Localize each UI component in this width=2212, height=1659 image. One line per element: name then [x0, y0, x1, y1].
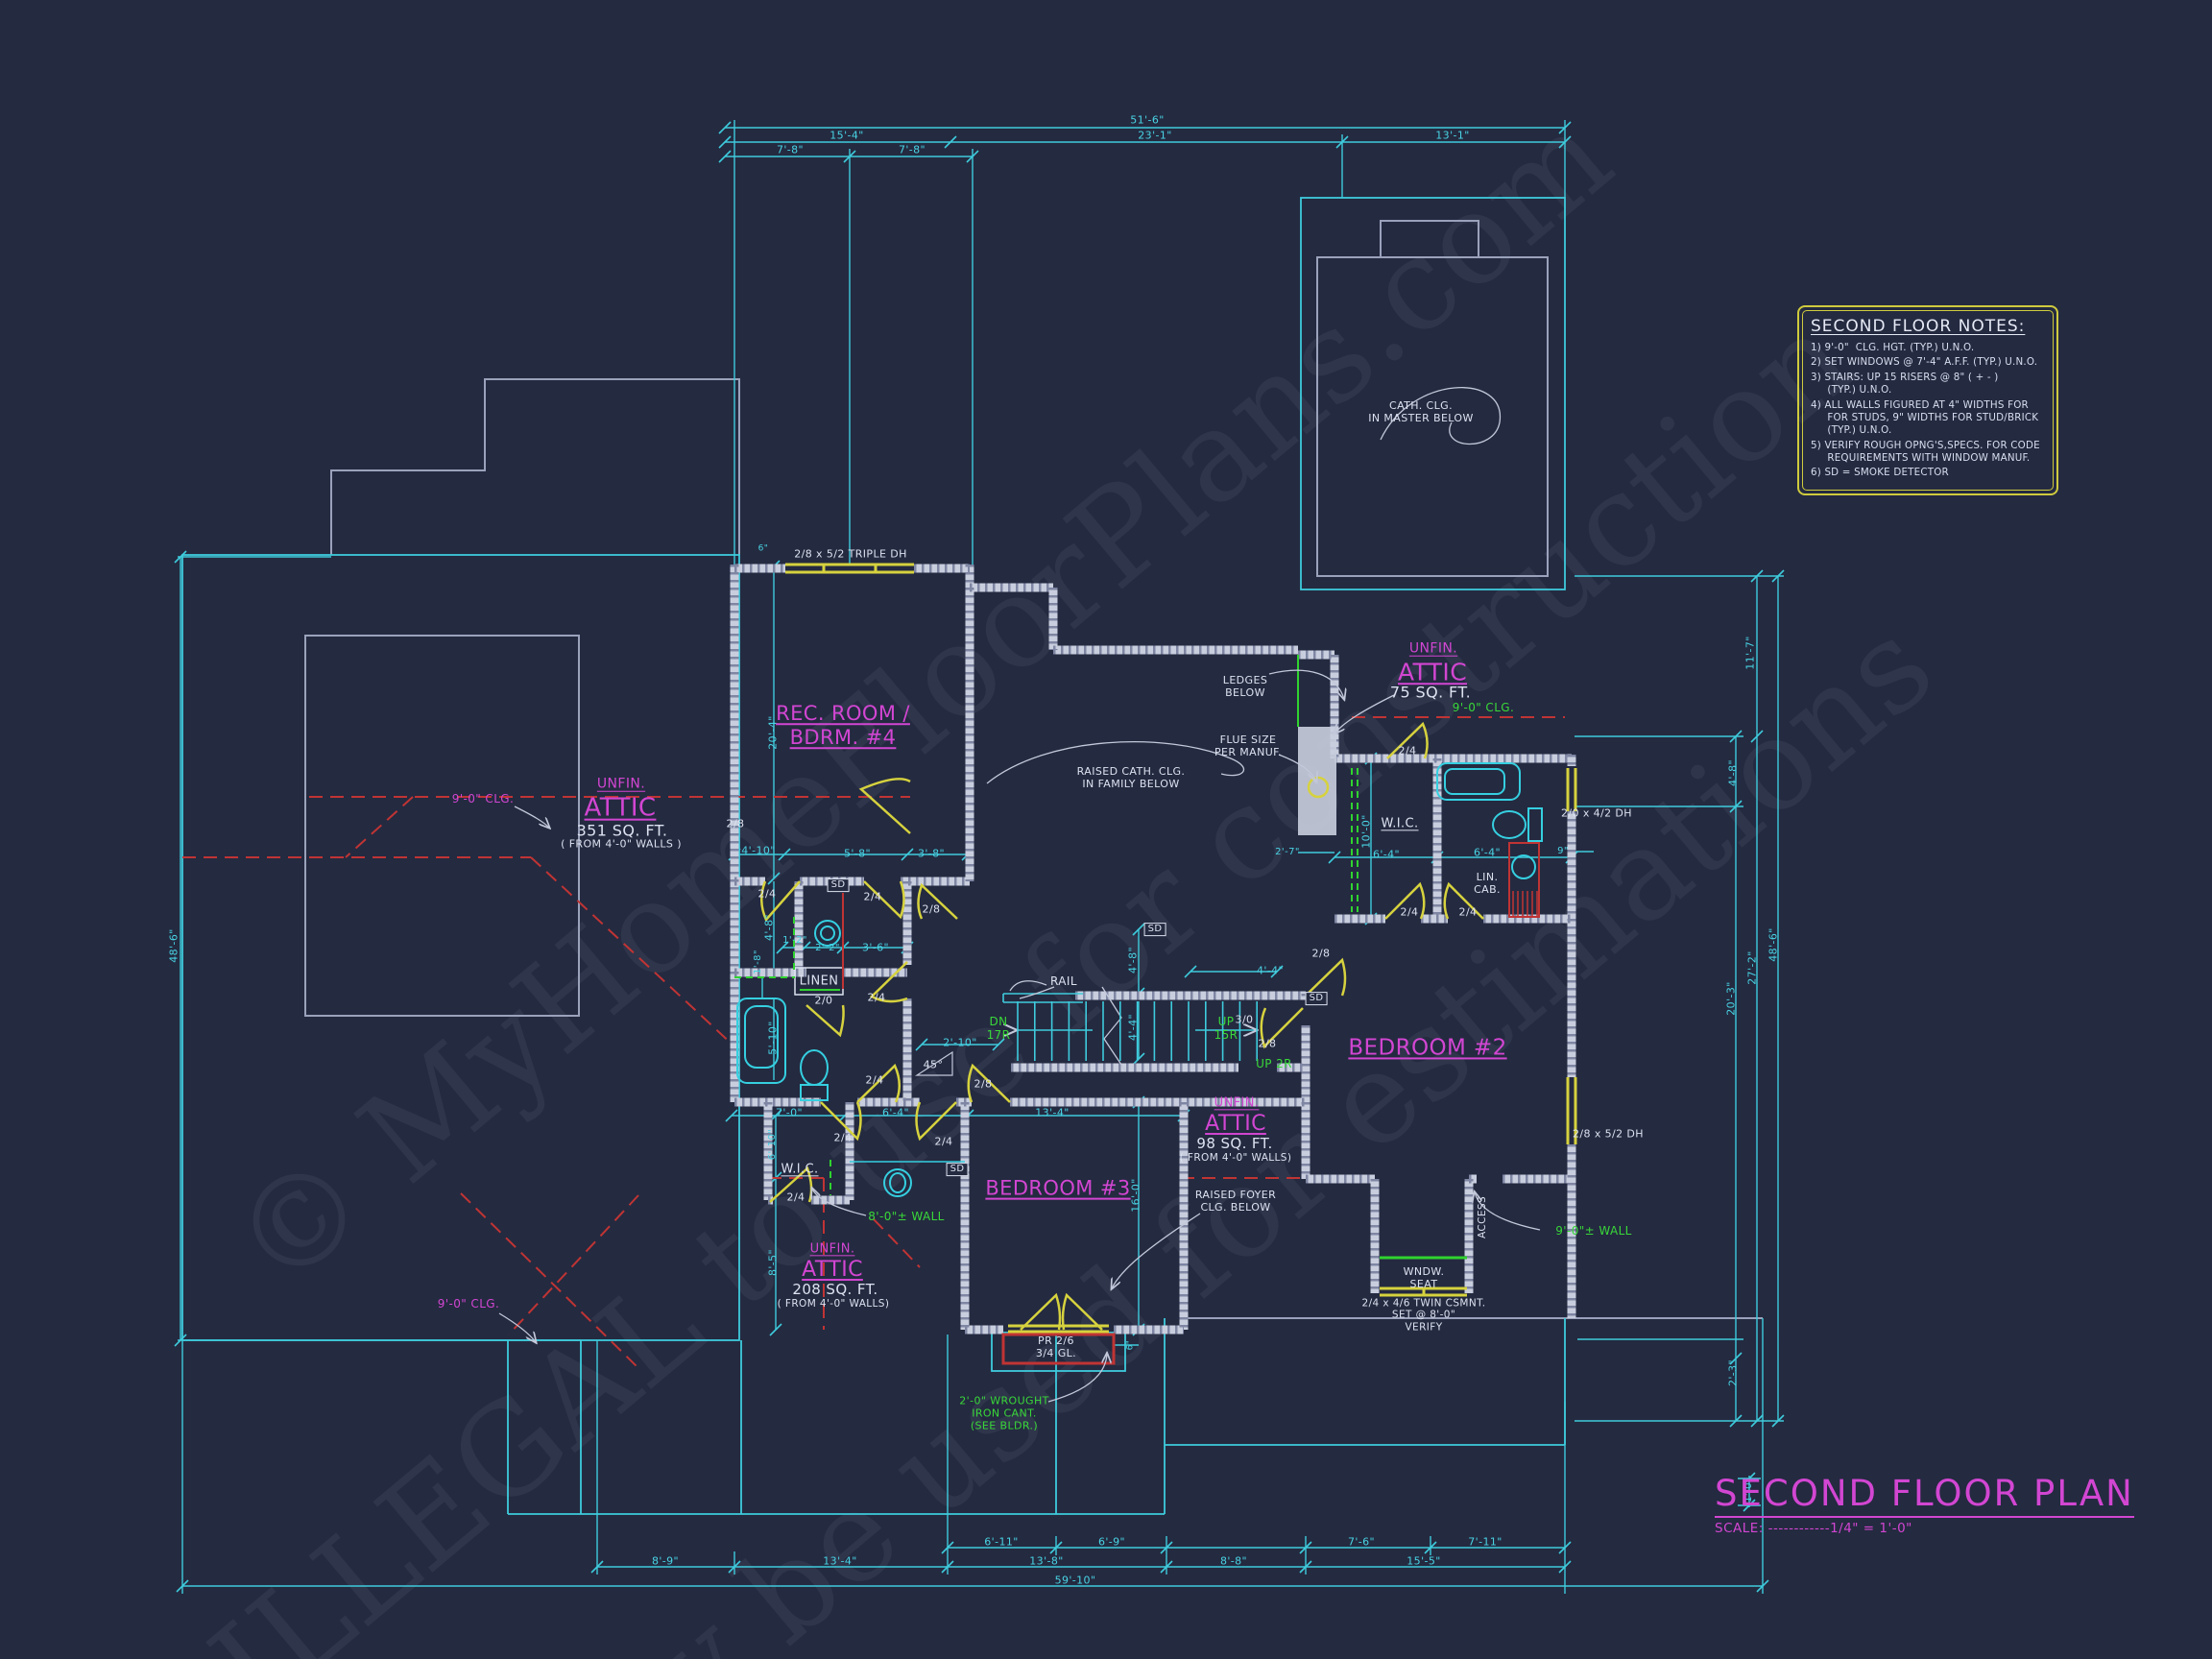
dim-100: 10'-0" — [1361, 814, 1374, 848]
roof-outlines — [305, 221, 1763, 1318]
wall-9ft-note: 9'-0"± WALL — [1555, 1224, 1631, 1238]
dim-top-3: 13'-1" — [1435, 131, 1469, 143]
dim-85: 8'-5" — [768, 1249, 781, 1276]
notes-title: SECOND FLOOR NOTES: — [1811, 317, 2045, 336]
wndw-seat-label: WNDW. SEAT — [1404, 1266, 1445, 1291]
dim-12: 1'-2" — [782, 935, 807, 947]
door-28-rec: 2/8 — [727, 819, 745, 831]
dim-top-2: 23'-1" — [1138, 131, 1171, 143]
sd-detector-1: SD — [828, 878, 850, 892]
door-24-h: 2/4 — [1399, 746, 1417, 758]
dim-top-total: 51'-6" — [1130, 115, 1164, 128]
structure-outline — [182, 198, 1565, 1514]
room-label-rec-room: REC. ROOM / BDRM. #4 — [776, 702, 910, 750]
dim-160: 16'-0" — [1131, 1178, 1143, 1212]
dim-410: 4'-10" — [741, 846, 775, 858]
sd-detector-4: SD — [947, 1163, 969, 1176]
dim-bot-4: 7'-11" — [1468, 1537, 1502, 1550]
wall-8ft-note: 8'-0"± WALL — [868, 1210, 944, 1223]
dim-bot-3: 7'-6" — [1348, 1537, 1375, 1550]
wic-label-upper: W.I.C. — [1381, 816, 1418, 830]
door-24-a: 2/4 — [758, 889, 777, 902]
door-24-i: 2/4 — [1401, 907, 1419, 920]
dim-right-4: 27'-2" — [1747, 950, 1760, 984]
note-line: 1) 9'-0" CLG. HGT. (TYP.) U.N.O. — [1811, 342, 2045, 354]
attic-98-unfin: UNFIN. — [1214, 1095, 1260, 1110]
dim-right-5: 2'-3" — [1728, 1359, 1741, 1386]
triple-dh-label: 2/8 x 5/2 TRIPLE DH — [794, 549, 907, 562]
dim-27: 2'-7" — [1275, 847, 1300, 858]
dim-bot-1: 6'-11" — [984, 1537, 1018, 1550]
clg-note-left: 9'-0" CLG. — [452, 792, 514, 805]
attic-351-unfin: UNFIN. — [597, 777, 645, 793]
stairs-up-label: UP 15R — [1214, 1015, 1238, 1042]
drawing-scale: SCALE: ------------1/4" = 1'-0" — [1715, 1521, 2134, 1536]
note-line: 5) VERIFY ROUGH OPNG'S,SPECS. FOR CODE R… — [1811, 440, 2045, 466]
leader-lines — [499, 388, 1540, 1402]
sd-detector-2: SD — [1144, 923, 1166, 936]
dim-bot-total: 59'-10" — [1055, 1575, 1096, 1588]
dim-18: 1'-8" — [753, 950, 764, 974]
note-line: 6) SD = SMOKE DETECTOR — [1811, 467, 2045, 479]
door-24-f: 2/4 — [935, 1137, 953, 1149]
cad-floor-plan: © MyHomeFloorPlans.com ILLEGAL to use fo… — [0, 0, 2212, 1659]
dim-right-1: 11'-7" — [1745, 636, 1758, 669]
triple-dh-window — [785, 565, 914, 572]
note-line: 3) STAIRS: UP 15 RISERS @ 8" ( + - ) (TY… — [1811, 372, 2045, 397]
access-label: ACCESS — [1477, 1196, 1488, 1238]
stairs-up2r-label: UP 2R — [1256, 1057, 1292, 1070]
dim-top-4: 7'-8" — [777, 145, 804, 157]
dim-134-int: 13'-4" — [1035, 1108, 1069, 1120]
dim-right-total: 48'-6" — [1768, 927, 1781, 961]
attic-98-attic: ATTIC — [1205, 1112, 1266, 1137]
door-28-bed2: 2/8 — [1312, 949, 1331, 961]
dim-64b: 6'-4" — [1373, 850, 1400, 862]
flue-size-note: FLUE SIZE PER MANUF. — [1214, 734, 1282, 759]
dim-bot-5: 8'-9" — [652, 1556, 679, 1569]
raised-foyer-note: RAISED FOYER CLG. BELOW — [1195, 1190, 1276, 1214]
stair-rail — [1003, 994, 1083, 1002]
door-28-hall: 2/8 — [923, 904, 941, 917]
door-20: 2/0 — [815, 996, 833, 1008]
attic-208-attic: ATTIC — [802, 1258, 863, 1283]
attic-208-walls: ( FROM 4'-0" WALLS) — [778, 1298, 890, 1310]
dim-210: 2'-10" — [943, 1038, 976, 1050]
linen-label: LINEN — [800, 974, 839, 988]
toilet-left — [801, 1050, 828, 1085]
attic-75-attic: ATTIC — [1398, 658, 1467, 686]
dim-9in: 9" — [1557, 846, 1569, 857]
dim-bot-8: 8'-8" — [1220, 1556, 1247, 1569]
clg-note-right: 9'-0" CLG. — [1453, 701, 1514, 714]
dim-48b: 4'-8" — [1128, 947, 1141, 974]
dim-top-1: 15'-4" — [829, 131, 863, 143]
attic-208-unfin: UNFIN. — [810, 1241, 855, 1256]
wrought-iron-note: 2'-0" WROUGHT IRON CANT. (SEE BLDR.) — [959, 1396, 1049, 1433]
flue-chase — [1298, 727, 1336, 835]
dim-bot-7: 13'-8" — [1029, 1556, 1063, 1569]
dim-64a: 6'-4" — [882, 1108, 909, 1120]
attic-351-walls: ( FROM 4'-0" WALLS ) — [561, 839, 682, 852]
pedestal-sink — [815, 921, 840, 946]
door-24-c: 2/4 — [868, 993, 886, 1005]
raised-cath-note: RAISED CATH. CLG. IN FAMILY BELOW — [1077, 766, 1186, 791]
sd-detector-3: SD — [1306, 992, 1328, 1005]
dim-44a: 4'-4" — [1128, 1014, 1141, 1041]
dh-window-1 — [1568, 768, 1575, 811]
dim-58: 5'-8" — [844, 849, 871, 861]
dim-510: 5'-10" — [768, 1021, 781, 1054]
attic-98-walls: ( FROM 4'-0" WALLS) — [1180, 1152, 1292, 1164]
toilet-upper — [1493, 811, 1526, 838]
plumbing-fixtures — [737, 763, 1542, 1196]
rail-label: RAIL — [1050, 974, 1077, 988]
dim-610: 6'-10" — [767, 1129, 779, 1160]
lin-cab-bowl — [1512, 855, 1535, 878]
door-24-d: 2/4 — [866, 1075, 884, 1088]
room-label-bedroom-2: BEDROOM #2 — [1348, 1035, 1506, 1061]
dim-6in-bot: 6" — [1126, 1340, 1137, 1351]
twin-csmnt-note: 2/4 x 4/6 TWIN CSMNT. SET @ 8'-0" VERIFY — [1362, 1297, 1486, 1333]
title-block: SECOND FLOOR PLAN SCALE: ------------1/4… — [1715, 1473, 2134, 1536]
dim-right-2: 4'-8" — [1728, 759, 1741, 786]
ledges-below-note: LEDGES BELOW — [1223, 675, 1267, 700]
dim-left-total: 48'-6" — [169, 928, 181, 962]
attic-75-sqft: 75 SQ. FT. — [1390, 685, 1471, 703]
drawing-title: SECOND FLOOR PLAN — [1715, 1473, 2134, 1518]
door-24-g: 2/4 — [787, 1192, 805, 1205]
dim-64c: 6'-4" — [1474, 848, 1501, 860]
door-28-bed3: 2/8 — [974, 1079, 993, 1092]
dim-bot-6: 13'-4" — [823, 1556, 856, 1569]
dim-44b: 4'-4" — [1257, 966, 1284, 978]
cath-clg-master-note: CATH. CLG. IN MASTER BELOW — [1368, 400, 1474, 425]
second-floor-notes-box: SECOND FLOOR NOTES: 1) 9'-0" CLG. HGT. (… — [1797, 305, 2058, 495]
dim-top-5: 7'-8" — [899, 145, 926, 157]
dim-bot-2: 6'-9" — [1098, 1537, 1125, 1550]
dim-48a: 4'-8" — [764, 914, 777, 941]
angle-45-label: 45° — [924, 1060, 944, 1072]
clg-note-bottom-left: 9'-0" CLG. — [438, 1297, 499, 1310]
door-24-e: 2/4 — [834, 1133, 853, 1145]
dh-window-label-1: 2/0 x 4/2 DH — [1561, 808, 1632, 821]
door-24-b: 2/4 — [864, 892, 882, 904]
note-line: 4) ALL WALLS FIGURED AT 4" WIDTHS FOR FO… — [1811, 399, 2045, 438]
dh-window-label-2: 2/8 x 5/2 DH — [1573, 1129, 1644, 1142]
attic-75-unfin: UNFIN. — [1409, 641, 1457, 658]
stairs-dn-label: DN 17R — [987, 1015, 1011, 1042]
dim-bot-9: 15'-5" — [1407, 1556, 1440, 1569]
dim-70: 7'-0" — [776, 1108, 803, 1120]
lin-cab-label: LIN. CAB. — [1474, 872, 1501, 897]
dim-36: 3'-6" — [862, 943, 889, 955]
plan-linework — [0, 0, 2212, 1659]
wic-label-lower: W.I.C. — [781, 1162, 818, 1176]
room-label-bedroom-3: BEDROOM #3 — [985, 1177, 1130, 1201]
staircase — [917, 987, 1257, 1075]
dim-rec-height: 20'-4" — [768, 715, 781, 749]
attic-351-attic: ATTIC — [585, 794, 657, 824]
dim-22: 2'-2" — [815, 943, 840, 954]
dim-6in-top: 6" — [758, 544, 769, 555]
dim-right-3: 20'-3" — [1726, 981, 1739, 1015]
door-24-j: 2/4 — [1459, 907, 1478, 920]
door-28-up2r: 2/8 — [1259, 1039, 1277, 1051]
attic-208-sqft: 208 SQ. FT. — [792, 1282, 878, 1299]
dim-38: 3'-8" — [918, 849, 945, 861]
attic-98-sqft: 98 SQ. FT. — [1196, 1136, 1272, 1153]
note-line: 2) SET WINDOWS @ 7'-4" A.F.F. (TYP.) U.N… — [1811, 356, 2045, 369]
pr-doors-label: PR 2/6 3/4 GL. — [1036, 1335, 1076, 1360]
